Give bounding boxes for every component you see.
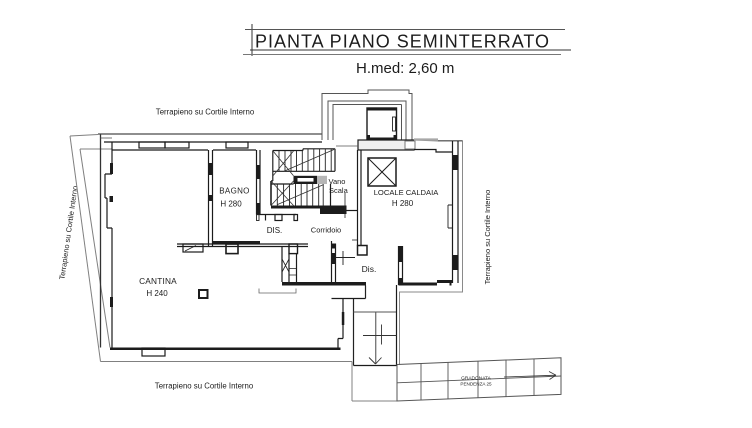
svg-text:BAGNO: BAGNO bbox=[219, 187, 249, 196]
svg-text:LOCALE CALDAIA: LOCALE CALDAIA bbox=[374, 188, 440, 197]
svg-text:PIANTA PIANO SEMINTERRATO: PIANTA PIANO SEMINTERRATO bbox=[255, 32, 550, 52]
svg-text:CANTINA: CANTINA bbox=[139, 276, 177, 286]
svg-text:Dis.: Dis. bbox=[362, 264, 377, 274]
svg-text:H.med: 2,60 m: H.med: 2,60 m bbox=[356, 60, 454, 77]
svg-text:H 280: H 280 bbox=[392, 199, 414, 208]
svg-text:Vano: Vano bbox=[329, 177, 346, 186]
svg-text:Terrapieno su Cortile Interno: Terrapieno su Cortile Interno bbox=[156, 108, 255, 117]
svg-text:H 240: H 240 bbox=[146, 289, 168, 298]
svg-text:H 280: H 280 bbox=[220, 200, 242, 209]
svg-text:Terrapieno su Cortile Interno: Terrapieno su Cortile Interno bbox=[483, 190, 492, 285]
svg-text:Scala: Scala bbox=[329, 186, 349, 195]
svg-text:PENDENZA 25: PENDENZA 25 bbox=[460, 382, 492, 387]
svg-text:DIS.: DIS. bbox=[267, 226, 283, 235]
svg-text:Corridoio: Corridoio bbox=[311, 226, 341, 235]
svg-text:Terrapieno su Cortile Interno: Terrapieno su Cortile Interno bbox=[155, 382, 254, 391]
